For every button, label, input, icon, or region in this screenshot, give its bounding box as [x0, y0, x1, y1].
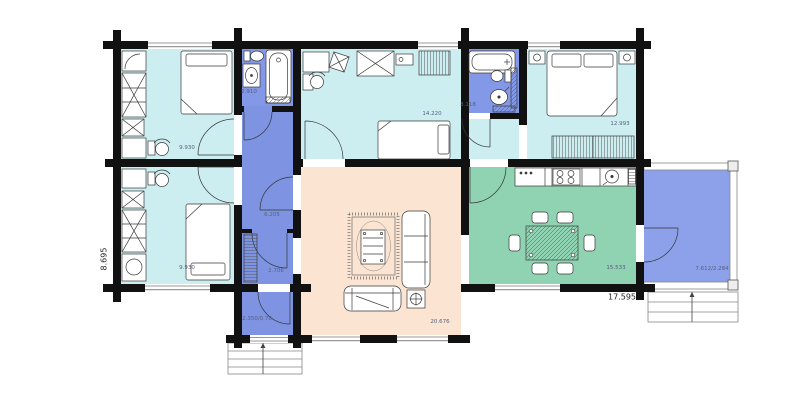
sink	[243, 64, 260, 87]
window	[148, 41, 212, 49]
wall-segment	[636, 28, 644, 225]
window	[397, 335, 448, 343]
wall-segment	[234, 28, 242, 115]
wall-segment	[360, 335, 397, 343]
corner-sofa	[402, 211, 430, 288]
terrace-post	[728, 161, 738, 171]
terrace-rail-bottom	[644, 282, 737, 289]
wall-segment	[113, 30, 121, 302]
wardrobe	[552, 136, 634, 158]
hall-wardrobe	[244, 234, 257, 282]
wall-segment	[242, 229, 252, 233]
room-label-bedroom-top-left: 9.930	[179, 145, 195, 151]
wall-segment	[234, 155, 242, 167]
sofa	[344, 286, 401, 311]
room-label-bedroom-top-right: 12.993	[610, 121, 629, 127]
room-entry	[242, 292, 293, 335]
dish-rack	[629, 169, 636, 184]
dresser	[396, 54, 413, 65]
wall-segment	[293, 41, 301, 175]
dining-chair	[532, 263, 548, 274]
wall-segment	[519, 41, 527, 125]
stove	[553, 169, 580, 185]
nightstand	[529, 51, 545, 64]
double-bed	[547, 51, 617, 116]
shelf-ladder	[122, 210, 146, 252]
wall-segment	[461, 28, 469, 167]
wall-segment	[508, 159, 651, 167]
wall-segment	[293, 274, 301, 348]
terrace-post	[728, 280, 738, 290]
bath-mat	[266, 97, 290, 103]
towel-rail	[511, 68, 517, 108]
bath-mat	[493, 106, 515, 112]
cabinet	[122, 51, 146, 71]
wall-segment	[448, 335, 470, 343]
desk	[122, 169, 155, 188]
wall-segment	[461, 284, 495, 292]
room-label-bedroom-bottom-left: 9.930	[179, 265, 195, 271]
room-label-bathroom-1: 2.910	[241, 89, 257, 95]
floor-plan: 9.930 2.910 14.220 3.118 12.993 9.930 6.…	[0, 0, 800, 400]
wall-segment	[345, 159, 470, 167]
room-label-dining-kitchen: 15.533	[606, 265, 625, 271]
room-label-bathroom-2: 3.118	[460, 102, 476, 108]
room-label-bedroom-top-center: 14.220	[422, 111, 441, 117]
coffee-table	[361, 230, 385, 264]
nightstand	[619, 51, 635, 64]
bathtub	[266, 50, 291, 103]
wall-segment	[636, 262, 644, 300]
wall-segment	[103, 284, 145, 292]
dining-chair	[532, 212, 548, 223]
room-label-terrace: 7.612/2.284	[695, 266, 728, 272]
terrace-rail-top	[644, 163, 737, 170]
dimension-overall-height: 8.695	[100, 248, 109, 271]
room-label-hall-lower: 2.706	[268, 268, 284, 274]
window	[418, 41, 458, 49]
wall-segment	[461, 167, 469, 235]
window	[495, 284, 560, 292]
wall-segment	[287, 229, 293, 233]
dining-chair	[557, 212, 573, 223]
wall-segment	[234, 205, 242, 348]
cabinet	[122, 254, 146, 281]
room-label-entry: 2.350/0.70	[242, 316, 272, 322]
storage-box	[122, 191, 144, 208]
closet	[419, 51, 450, 75]
wardrobe	[357, 51, 394, 76]
side-table	[407, 290, 425, 308]
bed	[378, 121, 450, 159]
storage-box	[122, 119, 144, 136]
window	[312, 335, 360, 343]
wall-segment	[105, 159, 242, 167]
dining-chair	[584, 235, 595, 251]
shelf-ladder	[122, 73, 146, 117]
window	[145, 284, 210, 292]
room-bedroom3-nook	[469, 119, 519, 159]
bed	[181, 51, 232, 114]
toilet	[244, 51, 264, 61]
room-label-hall-upper: 6.205	[264, 212, 280, 218]
entry-door-threshold	[250, 335, 288, 343]
dining-chair	[509, 235, 520, 251]
dining-table	[526, 226, 578, 260]
terrace-rail-right	[730, 163, 737, 289]
wall-segment	[293, 210, 301, 238]
floor-plan-canvas	[0, 0, 800, 400]
window	[528, 41, 560, 49]
desk	[122, 138, 155, 158]
toilet	[491, 70, 511, 82]
room-label-living: 20.676	[430, 319, 449, 325]
dimension-overall-width: 17.595	[608, 293, 636, 302]
dining-chair	[557, 263, 573, 274]
terrace-steps	[648, 292, 738, 322]
